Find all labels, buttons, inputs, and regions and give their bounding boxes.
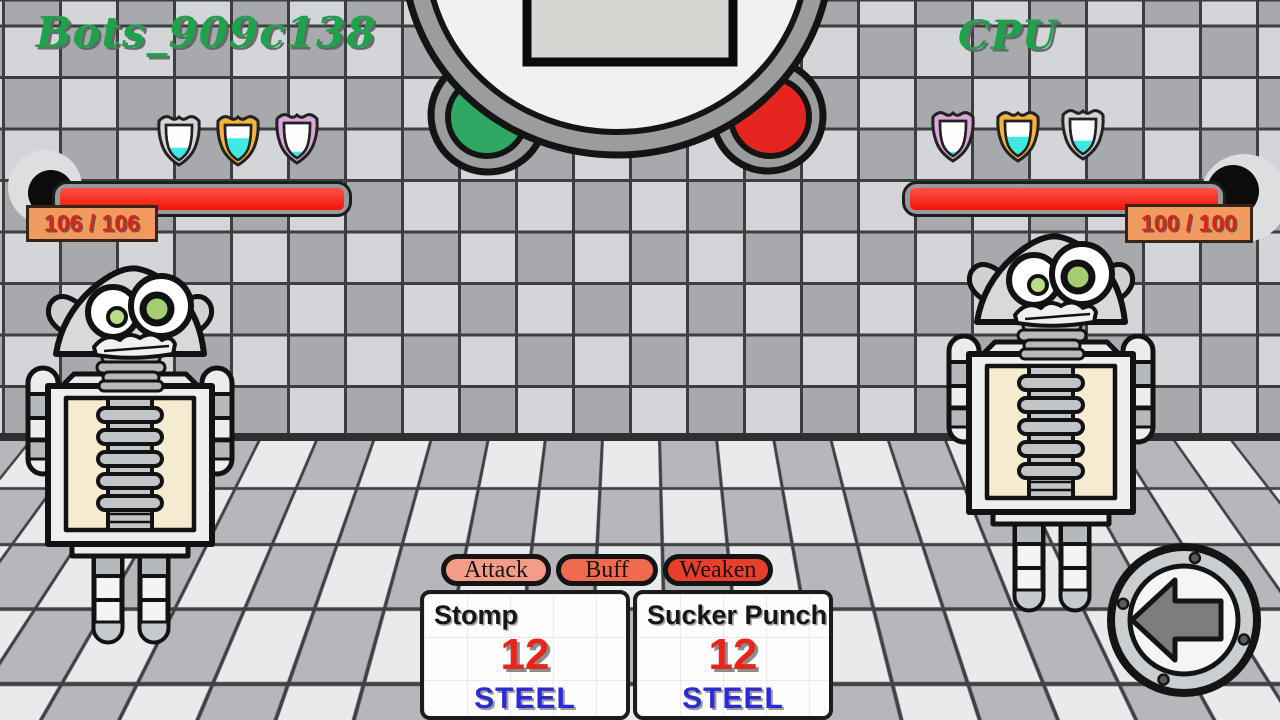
move-card-sucker-punch[interactable]: Sucker Punch 12 STEEL (633, 590, 833, 720)
shield-icon (1060, 106, 1106, 162)
shield-icon (215, 112, 261, 168)
score-machine (395, 0, 845, 178)
move-type: STEEL (637, 682, 829, 716)
move-type: STEEL (424, 682, 626, 716)
player-health-label: 106 / 106 (26, 205, 158, 242)
shield-icon (274, 110, 320, 166)
tab-weaken[interactable]: Weaken (663, 554, 773, 586)
move-name: Stomp (434, 600, 518, 631)
shield-icon (156, 112, 202, 168)
move-cards: Stomp 12 STEEL Sucker Punch 12 STEEL (420, 590, 833, 720)
player-robot (20, 262, 240, 652)
machine-screen (527, 0, 733, 62)
back-button[interactable] (1104, 541, 1264, 701)
shield-icon (930, 108, 976, 164)
battle-screen: Bots_909c138 CPU (0, 0, 1280, 720)
shield-icon (995, 108, 1041, 164)
bolt-icon (1118, 599, 1128, 609)
tab-attack[interactable]: Attack (441, 554, 551, 586)
bolt-icon (1190, 553, 1200, 563)
move-name: Sucker Punch (647, 600, 827, 631)
opponent-name: CPU (958, 12, 1058, 59)
bolt-icon (1239, 635, 1249, 645)
move-power: 12 (424, 630, 626, 680)
bolt-icon (1159, 675, 1169, 685)
tab-buff[interactable]: Buff (556, 554, 658, 586)
player-name: Bots_909c138 (36, 8, 376, 57)
move-power: 12 (637, 630, 829, 680)
move-tabs: Attack Buff Weaken (441, 554, 773, 586)
move-card-stomp[interactable]: Stomp 12 STEEL (420, 590, 630, 720)
